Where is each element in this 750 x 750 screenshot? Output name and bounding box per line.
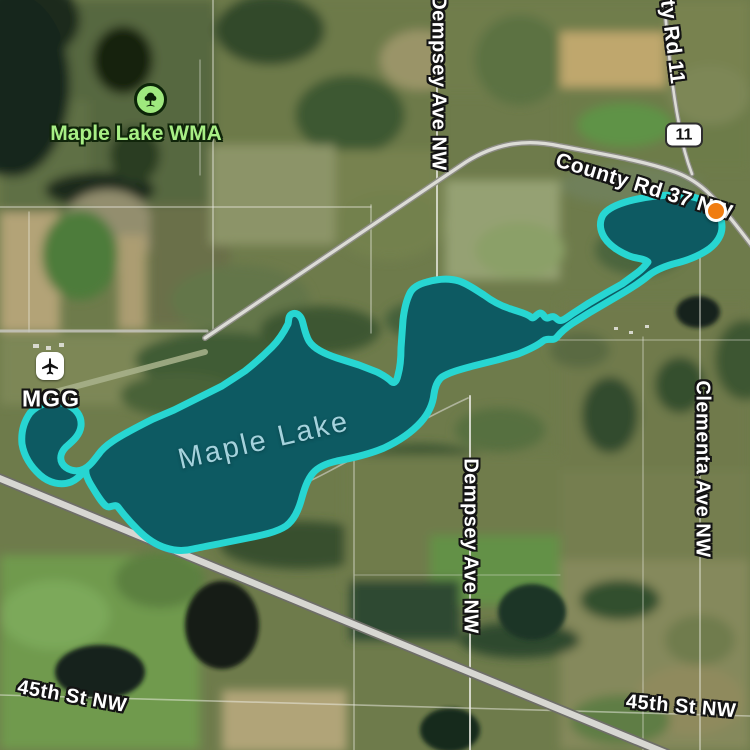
airplane-icon [40, 356, 60, 376]
wma-tree-icon[interactable] [134, 83, 167, 116]
airport-icon[interactable] [36, 352, 64, 380]
tree-icon [141, 90, 160, 109]
map-root[interactable]: Maple Lake WMA Maple Lake MGG 11 ty Rd 1… [0, 0, 750, 750]
wma-label[interactable]: Maple Lake WMA [50, 122, 222, 146]
satellite-map-canvas[interactable] [0, 0, 750, 750]
route-11-shield: 11 [665, 123, 703, 148]
road-label-dempsey-ave-south: Dempsey Ave NW [459, 458, 482, 634]
orange-point-marker[interactable] [705, 200, 727, 222]
road-label-clementa-ave: Clementa Ave NW [691, 380, 714, 557]
route-11-shield-number: 11 [676, 126, 693, 144]
road-label-dempsey-ave-north: Dempsey Ave NW [427, 0, 450, 171]
airport-code-label[interactable]: MGG [22, 386, 80, 413]
